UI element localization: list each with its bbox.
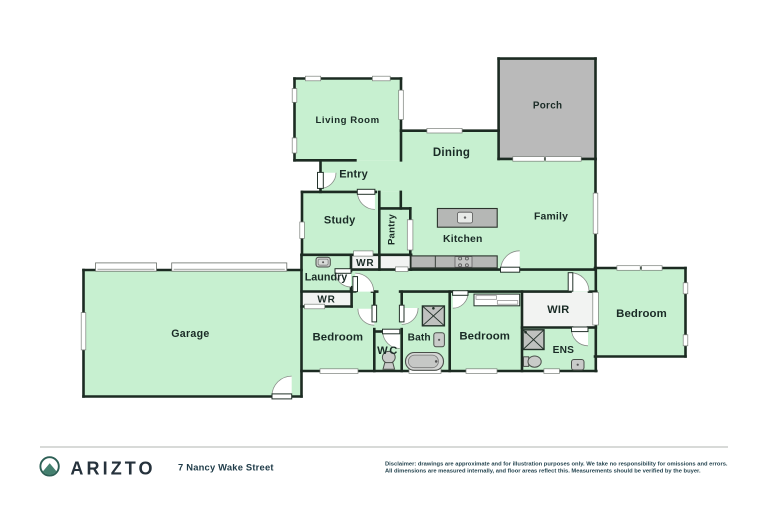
svg-text:Disclaimer: drawings are appro: Disclaimer: drawings are approximate and… — [385, 462, 728, 468]
svg-text:Kitchen: Kitchen — [443, 234, 483, 245]
svg-text:Dining: Dining — [433, 147, 470, 159]
svg-text:Bedroom: Bedroom — [459, 330, 510, 342]
svg-text:Entry: Entry — [339, 168, 368, 180]
svg-text:WR: WR — [356, 258, 374, 269]
svg-text:Porch: Porch — [533, 101, 563, 112]
svg-text:Laundry: Laundry — [305, 272, 348, 284]
svg-text:Living Room: Living Room — [316, 115, 380, 126]
svg-text:WIR: WIR — [547, 304, 569, 316]
svg-text:Pantry: Pantry — [387, 214, 398, 246]
svg-text:Garage: Garage — [171, 328, 209, 340]
svg-text:WR: WR — [317, 295, 335, 306]
svg-text:7 Nancy Wake Street: 7 Nancy Wake Street — [178, 461, 274, 472]
svg-text:Family: Family — [534, 212, 568, 223]
svg-text:Bath: Bath — [408, 333, 431, 344]
svg-text:Bedroom: Bedroom — [616, 308, 667, 320]
svg-text:Study: Study — [324, 214, 356, 226]
svg-text:Bedroom: Bedroom — [312, 331, 363, 343]
svg-text:ARIZTO: ARIZTO — [70, 458, 155, 478]
svg-text:WC: WC — [377, 345, 399, 357]
svg-text:ENS: ENS — [553, 345, 575, 356]
svg-text:All dimensions are measured in: All dimensions are measured internally, … — [385, 469, 701, 475]
